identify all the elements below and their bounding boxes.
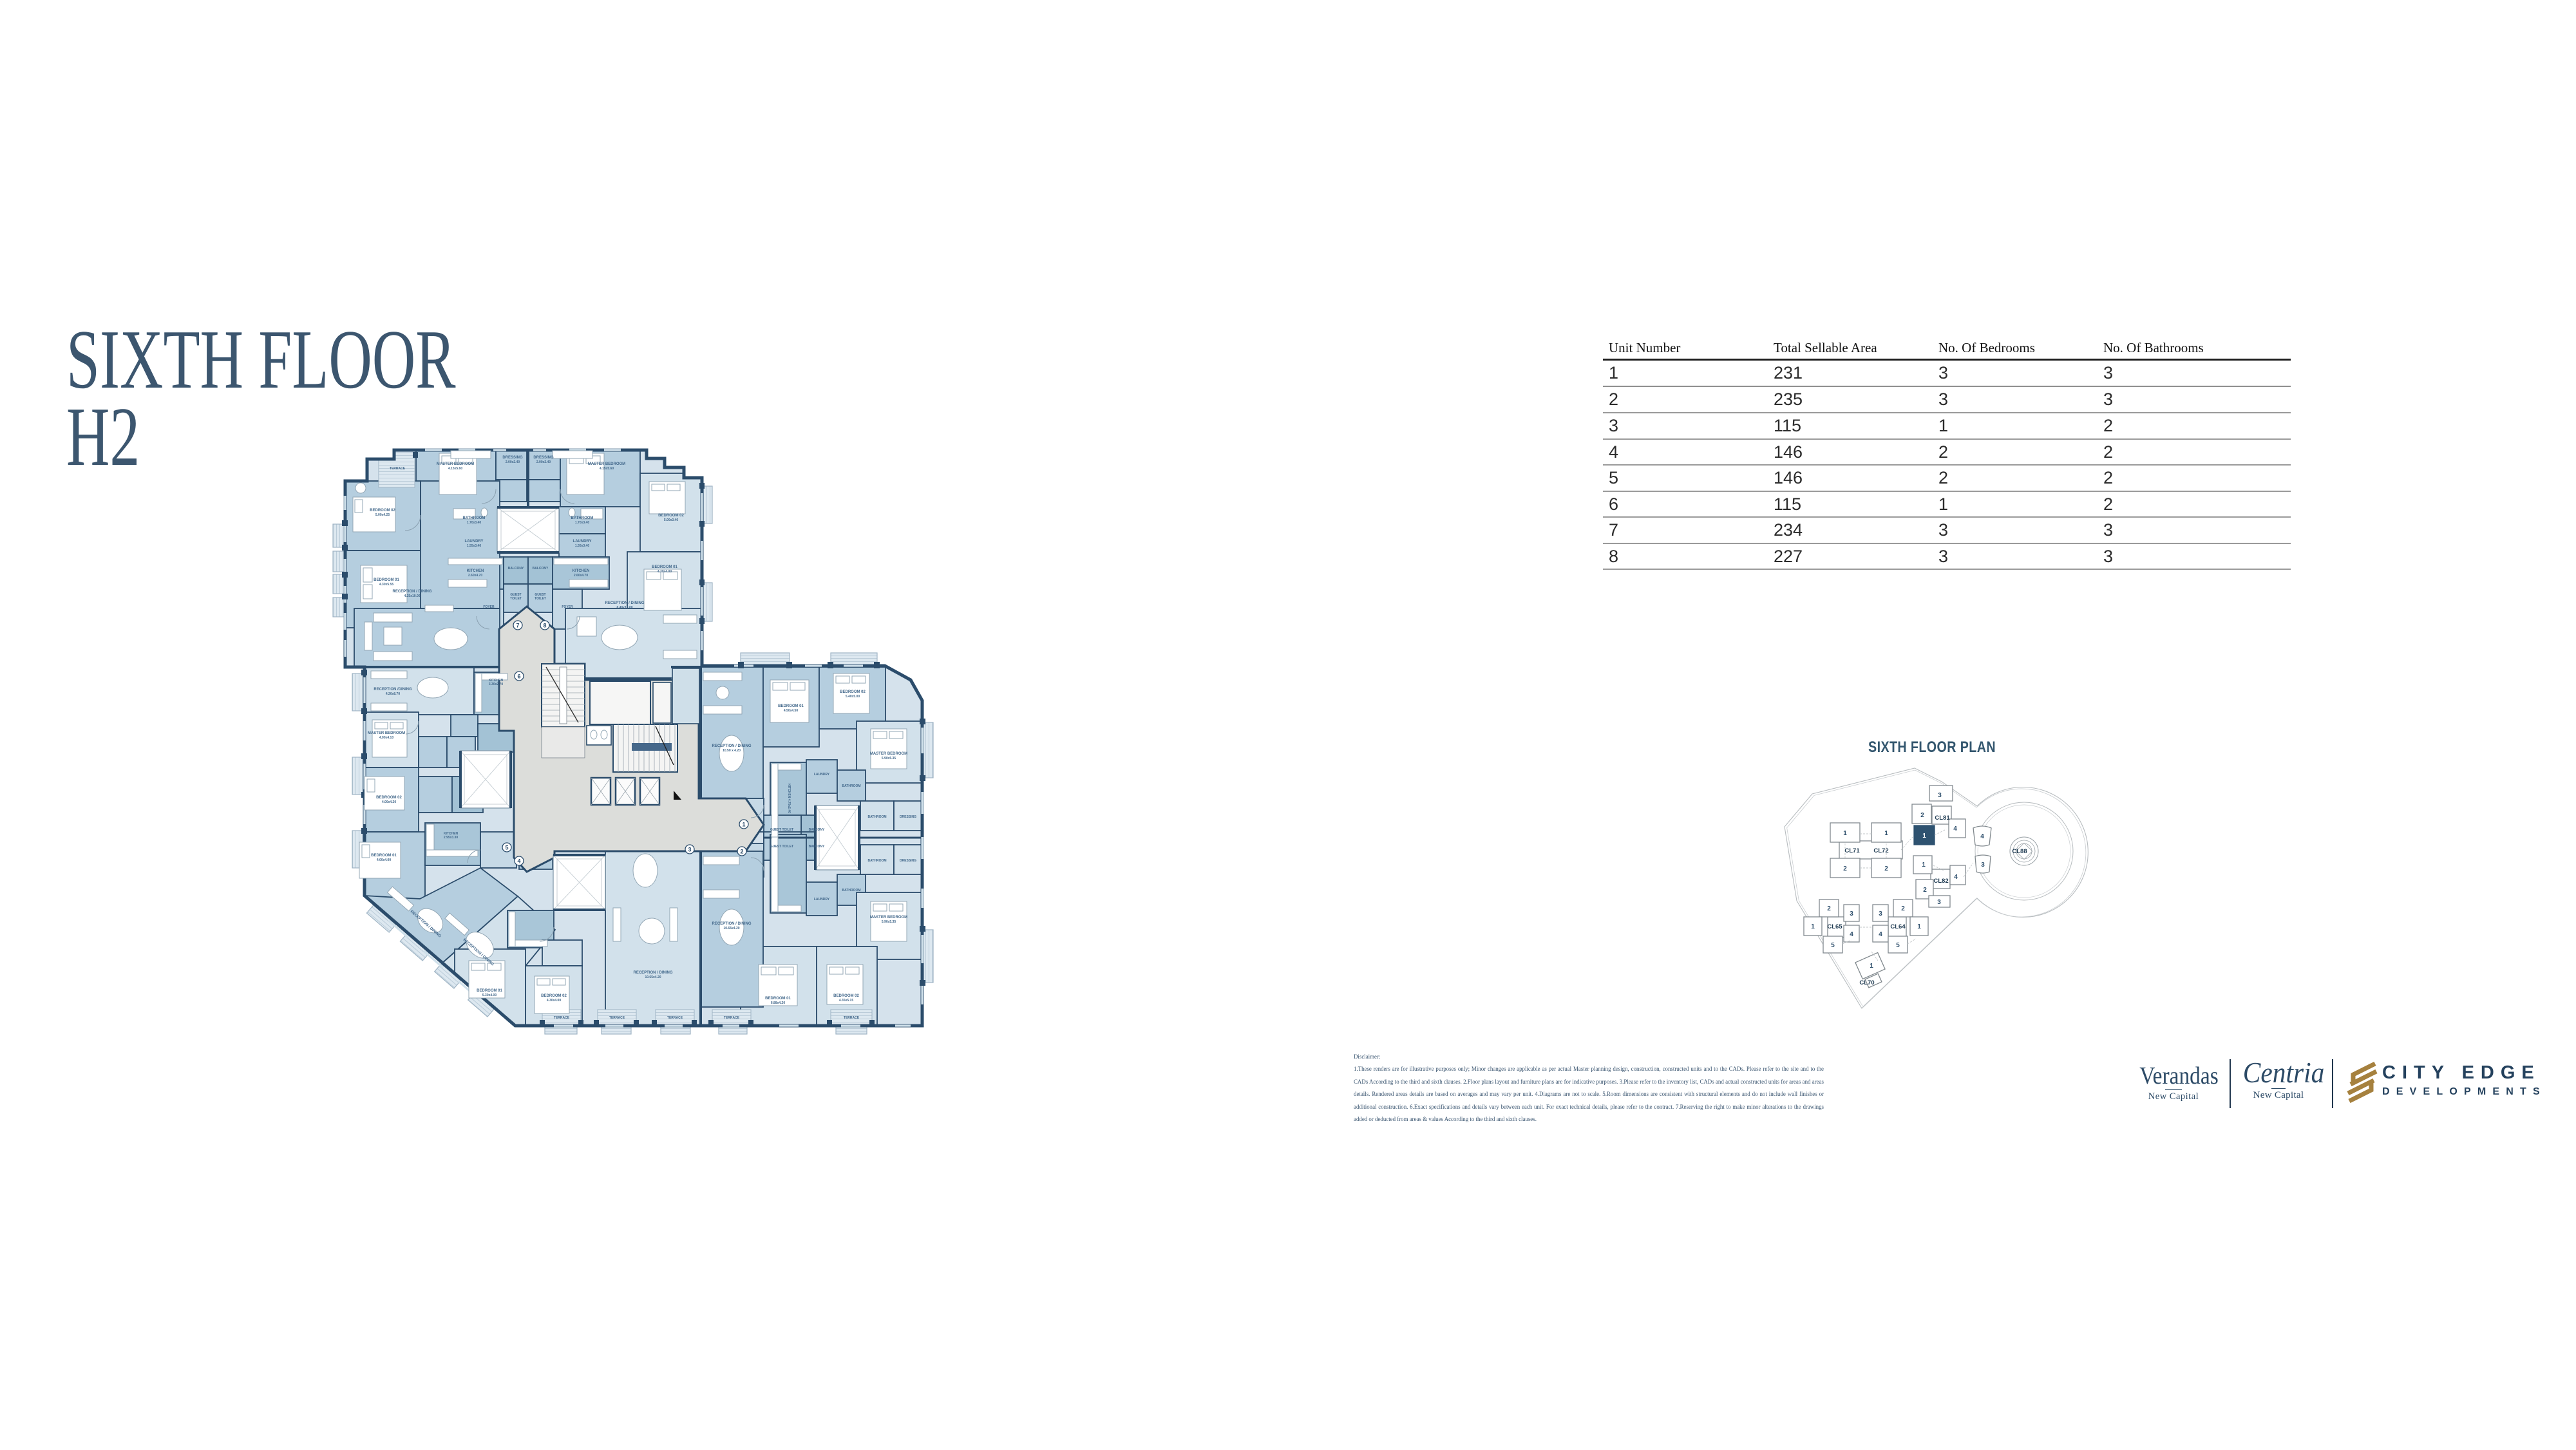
svg-text:LAUNDRY1.55x3.40: LAUNDRY1.55x3.40	[464, 540, 483, 548]
svg-text:BATHROOM: BATHROOM	[842, 784, 860, 788]
svg-text:3: 3	[1937, 899, 1941, 906]
svg-text:GUEST TOILET: GUEST TOILET	[770, 828, 793, 832]
svg-text:7: 7	[516, 623, 519, 629]
svg-text:1: 1	[742, 822, 745, 828]
svg-text:BATHROOM: BATHROOM	[867, 859, 886, 863]
svg-text:FOYER: FOYER	[483, 605, 495, 609]
svg-text:CL82: CL82	[1933, 878, 1948, 885]
svg-text:TERRACE: TERRACE	[609, 1016, 625, 1020]
svg-text:FOYER: FOYER	[562, 605, 573, 609]
svg-text:TERRACE: TERRACE	[844, 1016, 860, 1020]
svg-text:BALCONY: BALCONY	[508, 567, 524, 570]
svg-text:BATHROOM: BATHROOM	[842, 889, 860, 892]
svg-text:CL71: CL71	[1844, 847, 1860, 854]
svg-text:2: 2	[1827, 905, 1831, 912]
svg-text:3: 3	[1938, 792, 1942, 799]
svg-text:CL64: CL64	[1890, 923, 1906, 930]
svg-text:KITCHEN2.60x4.70: KITCHEN2.60x4.70	[573, 569, 590, 578]
svg-text:BALCONY: BALCONY	[809, 845, 825, 849]
svg-text:3: 3	[1981, 862, 1985, 869]
svg-text:1: 1	[1811, 923, 1815, 930]
svg-text:2: 2	[1843, 865, 1847, 872]
svg-text:LAUNDRY: LAUNDRY	[814, 898, 830, 901]
svg-text:CL81: CL81	[1935, 814, 1950, 822]
svg-text:4: 4	[1850, 931, 1853, 938]
svg-text:5: 5	[1831, 942, 1835, 949]
svg-text:BATHROOM: BATHROOM	[867, 815, 886, 819]
svg-text:GUESTTOILET: GUESTTOILET	[510, 593, 522, 601]
svg-text:1: 1	[1843, 830, 1847, 837]
svg-text:BALCONY: BALCONY	[809, 828, 825, 832]
svg-text:CL65: CL65	[1827, 923, 1842, 930]
svg-text:KITCHEN2.95x3.30: KITCHEN2.95x3.30	[444, 832, 459, 840]
svg-text:TERRACE: TERRACE	[724, 1016, 740, 1020]
svg-text:1: 1	[1870, 963, 1873, 970]
svg-text:KITCHEN 4.70x2.40: KITCHEN 4.70x2.40	[787, 784, 791, 813]
svg-text:GUEST TOILET: GUEST TOILET	[770, 845, 793, 849]
svg-text:4: 4	[1980, 833, 1984, 840]
svg-text:TERRACE: TERRACE	[390, 467, 406, 471]
svg-text:KITCHEN2.60x4.70: KITCHEN2.60x4.70	[467, 569, 484, 578]
svg-text:5: 5	[505, 845, 508, 851]
svg-text:1: 1	[1884, 830, 1888, 837]
svg-text:BALCONY: BALCONY	[533, 567, 549, 570]
svg-text:LAUNDRY: LAUNDRY	[814, 773, 830, 777]
svg-text:GUESTTOILET: GUESTTOILET	[535, 593, 546, 601]
svg-text:4: 4	[1879, 931, 1882, 938]
svg-text:6: 6	[517, 673, 520, 680]
svg-text:3: 3	[688, 847, 691, 853]
svg-text:3: 3	[1850, 910, 1853, 918]
svg-text:KITCHEN3.30x2.70: KITCHEN3.30x2.70	[489, 679, 504, 686]
svg-text:2: 2	[740, 849, 743, 855]
svg-text:4: 4	[1954, 874, 1958, 881]
svg-text:CL88: CL88	[2012, 848, 2027, 855]
svg-text:CL70: CL70	[1859, 979, 1874, 986]
svg-text:TERRACE: TERRACE	[667, 1016, 683, 1020]
svg-text:LAUNDRY1.55x3.40: LAUNDRY1.55x3.40	[573, 540, 591, 548]
svg-text:DRESSING: DRESSING	[900, 815, 916, 819]
svg-text:8: 8	[543, 623, 546, 629]
svg-text:2: 2	[1884, 865, 1888, 872]
svg-text:3: 3	[1879, 910, 1882, 918]
svg-text:1: 1	[1922, 862, 1926, 869]
svg-text:4: 4	[1953, 825, 1957, 833]
svg-text:2: 2	[1920, 812, 1924, 819]
svg-text:4: 4	[517, 858, 520, 865]
svg-text:TERRACE: TERRACE	[554, 1016, 570, 1020]
svg-text:DRESSING: DRESSING	[900, 859, 916, 863]
svg-text:2: 2	[1923, 887, 1927, 894]
svg-text:CL72: CL72	[1873, 847, 1888, 854]
svg-text:5: 5	[1896, 942, 1900, 949]
svg-text:1: 1	[1922, 833, 1926, 840]
svg-text:2: 2	[1901, 905, 1905, 912]
svg-text:1: 1	[1917, 923, 1921, 930]
